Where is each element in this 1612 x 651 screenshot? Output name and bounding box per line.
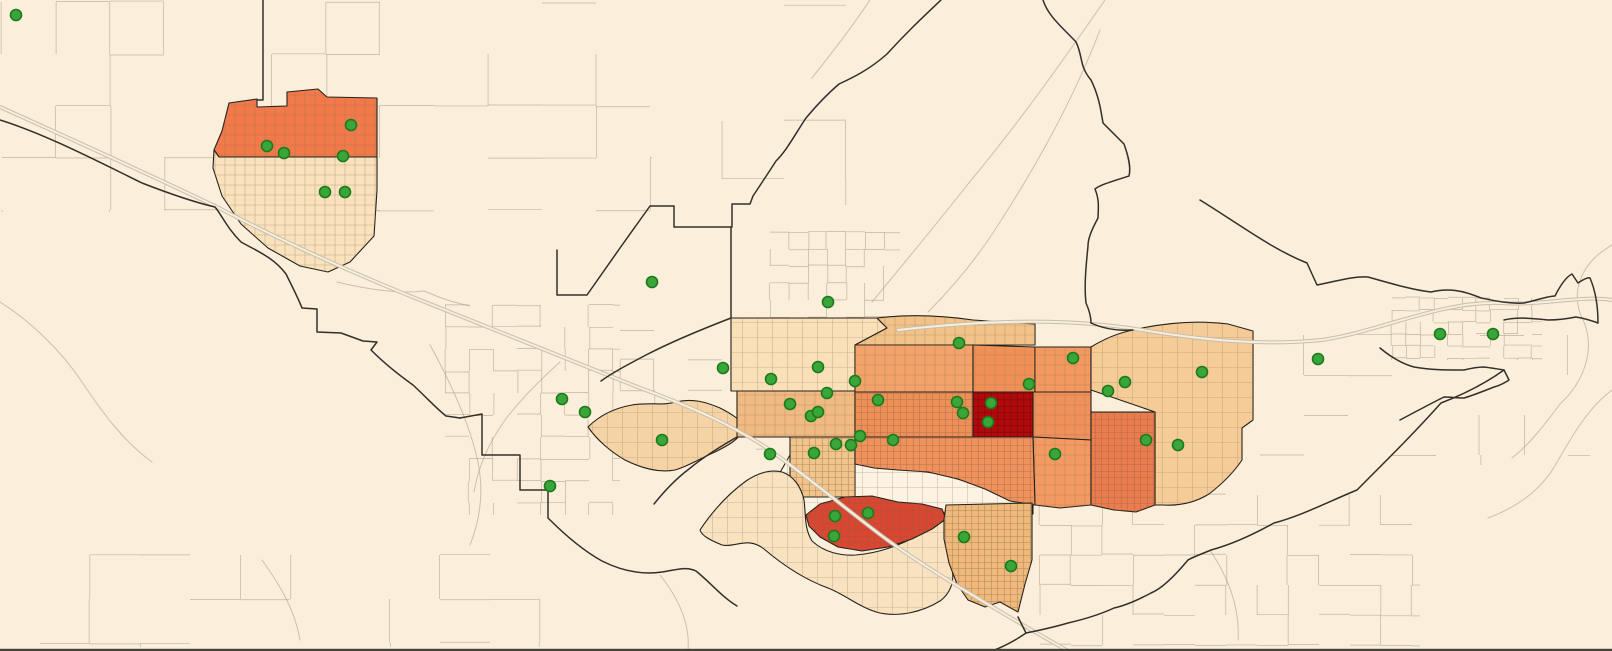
poi-marker[interactable]: [346, 120, 357, 131]
poi-marker[interactable]: [1197, 367, 1208, 378]
poi-marker[interactable]: [850, 376, 861, 387]
poi-marker[interactable]: [959, 532, 970, 543]
poi-marker[interactable]: [952, 397, 963, 408]
poi-marker[interactable]: [718, 363, 729, 374]
poi-marker[interactable]: [983, 417, 994, 428]
poi-marker[interactable]: [873, 395, 884, 406]
poi-marker[interactable]: [1173, 440, 1184, 451]
poi-marker[interactable]: [958, 408, 969, 419]
poi-marker[interactable]: [863, 508, 874, 519]
poi-marker[interactable]: [1050, 449, 1061, 460]
poi-marker[interactable]: [262, 141, 273, 152]
poi-marker[interactable]: [279, 148, 290, 159]
poi-marker[interactable]: [830, 511, 841, 522]
poi-marker[interactable]: [580, 407, 591, 418]
poi-marker[interactable]: [338, 151, 349, 162]
poi-marker[interactable]: [785, 399, 796, 410]
poi-marker[interactable]: [1120, 377, 1131, 388]
tract-c-east-lower[interactable]: [1033, 437, 1091, 508]
choropleth-map[interactable]: [0, 0, 1612, 651]
poi-marker[interactable]: [829, 531, 840, 542]
tract-c-deep-vert[interactable]: [1091, 412, 1155, 512]
poi-marker[interactable]: [340, 187, 351, 198]
tract-c-east-mid[interactable]: [1033, 392, 1091, 440]
poi-marker[interactable]: [545, 481, 556, 492]
poi-marker[interactable]: [320, 187, 331, 198]
poi-marker[interactable]: [647, 277, 658, 288]
poi-marker[interactable]: [986, 398, 997, 409]
poi-marker[interactable]: [954, 338, 965, 349]
poi-marker[interactable]: [1024, 379, 1035, 390]
poi-marker[interactable]: [846, 440, 857, 451]
poi-marker[interactable]: [888, 435, 899, 446]
tract-c-east-upper[interactable]: [1035, 347, 1091, 392]
poi-marker[interactable]: [557, 394, 568, 405]
poi-marker[interactable]: [1006, 561, 1017, 572]
poi-marker[interactable]: [822, 388, 833, 399]
poi-marker[interactable]: [813, 362, 824, 373]
poi-marker[interactable]: [1435, 329, 1446, 340]
tract-c-orange-1[interactable]: [855, 345, 973, 392]
tract-c-band[interactable]: [737, 391, 855, 437]
poi-marker[interactable]: [765, 449, 776, 460]
poi-marker[interactable]: [766, 374, 777, 385]
poi-marker[interactable]: [657, 435, 668, 446]
poi-marker[interactable]: [813, 407, 824, 418]
poi-marker[interactable]: [823, 297, 834, 308]
poi-marker[interactable]: [831, 439, 842, 450]
map-canvas[interactable]: [0, 0, 1612, 651]
poi-marker[interactable]: [855, 431, 866, 442]
poi-marker[interactable]: [1313, 354, 1324, 365]
poi-marker[interactable]: [1103, 386, 1114, 397]
poi-marker[interactable]: [1141, 435, 1152, 446]
tract-c-dark-red[interactable]: [973, 392, 1033, 437]
poi-marker[interactable]: [11, 10, 22, 21]
poi-marker[interactable]: [1068, 353, 1079, 364]
poi-marker[interactable]: [1488, 329, 1499, 340]
poi-marker[interactable]: [809, 448, 820, 459]
